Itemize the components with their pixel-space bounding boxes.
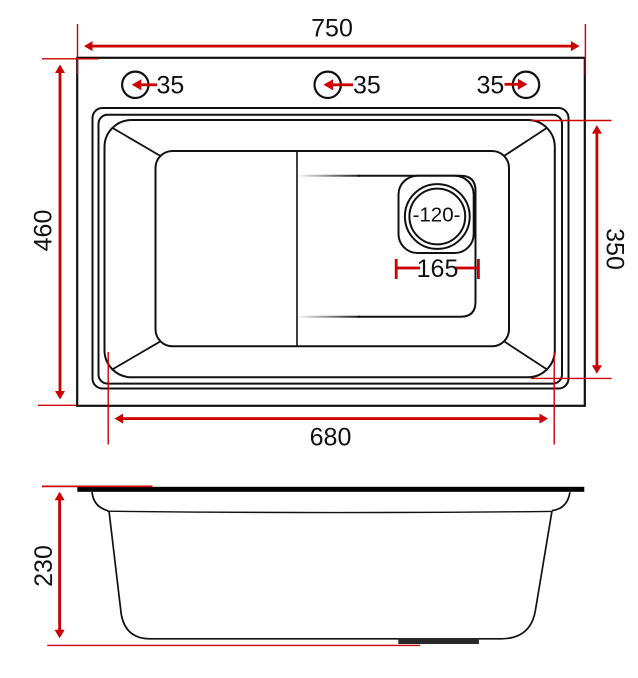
svg-text:750: 750 xyxy=(311,15,353,43)
svg-text:460: 460 xyxy=(30,210,58,252)
svg-text:-120-: -120- xyxy=(413,203,461,226)
svg-text:350: 350 xyxy=(601,228,629,270)
svg-text:230: 230 xyxy=(30,545,58,587)
svg-text:35: 35 xyxy=(157,71,185,99)
svg-text:680: 680 xyxy=(310,424,352,452)
svg-text:165: 165 xyxy=(417,255,459,283)
svg-text:35: 35 xyxy=(477,71,505,99)
svg-text:35: 35 xyxy=(353,71,381,99)
